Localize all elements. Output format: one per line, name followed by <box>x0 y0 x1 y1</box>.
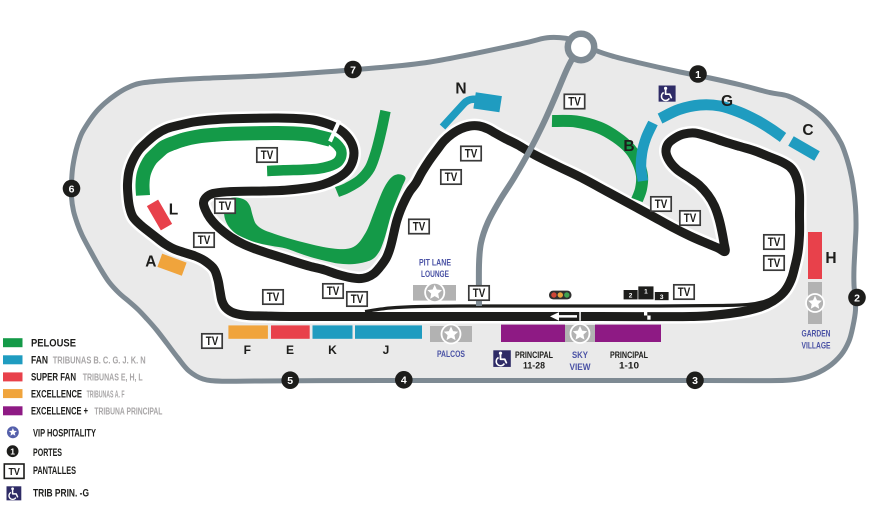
svg-text:TRIBUNAS A. F: TRIBUNAS A. F <box>87 389 125 400</box>
svg-text:3: 3 <box>692 375 698 387</box>
svg-text:N: N <box>455 81 466 98</box>
svg-text:TRIBUNA PRINCIPAL: TRIBUNA PRINCIPAL <box>94 407 162 418</box>
svg-text:11-28: 11-28 <box>523 361 545 372</box>
svg-text:PORTES: PORTES <box>33 447 62 459</box>
svg-text:TV: TV <box>684 213 697 225</box>
svg-text:1: 1 <box>695 69 701 81</box>
svg-text:A: A <box>145 254 156 271</box>
svg-text:1-10: 1-10 <box>619 361 639 372</box>
svg-text:6: 6 <box>69 183 75 195</box>
svg-text:1: 1 <box>10 446 15 456</box>
svg-text:EXCELLENCE: EXCELLENCE <box>31 388 82 400</box>
svg-text:TV: TV <box>219 201 232 213</box>
svg-text:B: B <box>623 138 634 155</box>
svg-text:PRINCIPAL: PRINCIPAL <box>610 350 648 361</box>
svg-text:TRIB PRIN. -G: TRIB PRIN. -G <box>33 487 89 499</box>
svg-text:TV: TV <box>8 466 20 478</box>
svg-text:FAN: FAN <box>31 355 48 367</box>
svg-text:7: 7 <box>350 64 356 76</box>
svg-text:J: J <box>383 343 390 357</box>
svg-text:TV: TV <box>465 149 478 161</box>
svg-text:TV: TV <box>655 199 668 211</box>
svg-text:H: H <box>825 250 836 267</box>
svg-text:C: C <box>802 122 813 139</box>
svg-text:PRINCIPAL: PRINCIPAL <box>515 350 553 361</box>
svg-text:TV: TV <box>351 294 364 306</box>
svg-text:PIT LANE: PIT LANE <box>419 258 451 269</box>
svg-text:4: 4 <box>401 375 407 387</box>
svg-text:PALCOS: PALCOS <box>437 349 465 360</box>
svg-text:TV: TV <box>198 235 211 247</box>
svg-text:GARDEN: GARDEN <box>802 329 831 340</box>
svg-text:PELOUSE: PELOUSE <box>31 337 76 349</box>
svg-text:VIP HOSPITALITY: VIP HOSPITALITY <box>33 428 96 440</box>
svg-text:TV: TV <box>768 237 781 249</box>
svg-text:TV: TV <box>261 150 274 162</box>
svg-text:2: 2 <box>629 292 633 299</box>
svg-text:E: E <box>286 343 294 357</box>
svg-text:L: L <box>169 202 178 219</box>
svg-text:VILLAGE: VILLAGE <box>802 341 831 352</box>
svg-text:EXCELLENCE +: EXCELLENCE + <box>31 406 88 418</box>
svg-text:LOUNGE: LOUNGE <box>421 269 449 280</box>
svg-text:TV: TV <box>327 286 340 298</box>
svg-text:TV: TV <box>678 287 691 299</box>
svg-text:VIEW: VIEW <box>570 362 591 373</box>
svg-text:2: 2 <box>854 292 860 304</box>
svg-text:TRIBUNAS B. C. G. J. K. N: TRIBUNAS B. C. G. J. K. N <box>53 356 146 367</box>
svg-text:SUPER FAN: SUPER FAN <box>31 372 76 384</box>
svg-text:F: F <box>244 343 251 357</box>
svg-text:SKY: SKY <box>572 350 589 361</box>
svg-text:TV: TV <box>206 336 219 348</box>
svg-text:TRIBUNAS E, H, L: TRIBUNAS E, H, L <box>83 373 143 384</box>
svg-text:TV: TV <box>267 292 280 304</box>
svg-text:PANTALLES: PANTALLES <box>33 465 76 477</box>
svg-text:TV: TV <box>413 222 426 234</box>
svg-text:G: G <box>721 93 733 110</box>
svg-text:TV: TV <box>568 97 581 109</box>
svg-text:K: K <box>328 343 337 357</box>
svg-text:TV: TV <box>445 172 458 184</box>
svg-text:TV: TV <box>768 258 781 270</box>
svg-text:3: 3 <box>660 294 664 301</box>
svg-text:TV: TV <box>473 288 486 300</box>
svg-text:5: 5 <box>287 375 293 387</box>
svg-text:1: 1 <box>644 289 648 296</box>
